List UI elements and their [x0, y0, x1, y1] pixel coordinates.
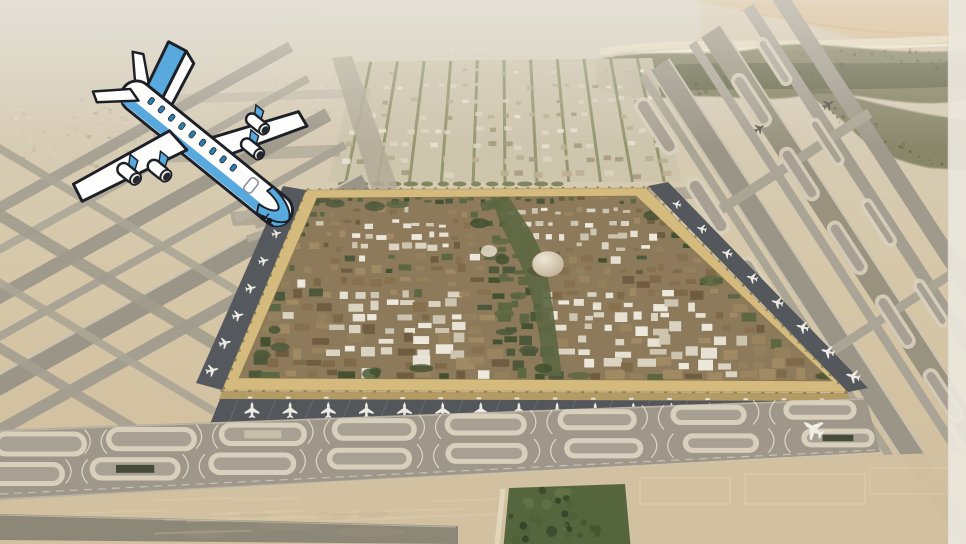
building: [371, 265, 381, 273]
building: [456, 371, 465, 380]
crenellation: [710, 252, 712, 255]
crenellation: [492, 187, 494, 188]
building: [659, 335, 670, 345]
district-building: [615, 157, 623, 161]
building: [336, 247, 341, 252]
building: [648, 338, 661, 346]
building: [345, 346, 355, 352]
building: [664, 299, 678, 306]
building: [442, 254, 453, 260]
jet-bridge: [782, 398, 787, 400]
jet-bridge: [438, 397, 443, 399]
island-core: [332, 453, 406, 465]
veg-dot: [940, 163, 943, 166]
spine-tree: [491, 238, 510, 244]
crenellation: [581, 391, 584, 393]
district-building: [401, 158, 408, 162]
building: [521, 323, 533, 329]
building: [341, 269, 353, 273]
crenellation: [706, 392, 709, 394]
crenellation: [276, 390, 279, 392]
crenellation: [415, 391, 418, 393]
building: [356, 220, 361, 225]
district-building: [461, 156, 470, 160]
jet-bridge: [286, 397, 291, 399]
building: [416, 266, 425, 271]
building: [431, 266, 443, 270]
perimeter-tree: [409, 364, 433, 372]
building: [404, 328, 415, 333]
perimeter-tree: [365, 202, 385, 212]
building: [673, 270, 681, 274]
tree: [529, 516, 535, 522]
island-core: [563, 414, 631, 425]
building: [698, 338, 711, 343]
crenellation: [636, 391, 639, 393]
building: [286, 371, 297, 377]
building: [740, 371, 757, 379]
building: [786, 358, 804, 366]
building: [331, 222, 340, 225]
building: [650, 275, 661, 282]
crenellation: [655, 195, 657, 198]
building: [661, 313, 670, 318]
building: [331, 258, 340, 264]
jet-bridge: [477, 397, 482, 399]
building: [487, 349, 503, 359]
building: [333, 314, 343, 322]
building: [558, 349, 575, 355]
crenellation: [262, 390, 265, 392]
building: [564, 280, 575, 287]
building: [574, 299, 584, 306]
building: [587, 292, 596, 297]
building: [657, 232, 665, 238]
tree: [524, 498, 534, 508]
building: [581, 255, 593, 261]
building: [578, 336, 586, 343]
building: [381, 347, 392, 354]
building: [605, 370, 625, 381]
jet-bridge: [362, 397, 367, 399]
building: [448, 282, 457, 286]
tree: [542, 499, 552, 509]
building: [427, 245, 437, 251]
crenellation: [423, 188, 425, 189]
district-building: [663, 171, 672, 176]
building: [630, 231, 637, 237]
building: [289, 265, 295, 271]
crenellation: [527, 187, 529, 188]
crenellation: [844, 392, 847, 394]
building: [559, 234, 564, 241]
crenellation: [498, 391, 501, 393]
building: [686, 346, 698, 355]
building: [701, 348, 717, 359]
tree: [519, 522, 527, 530]
building: [519, 336, 532, 345]
building: [429, 232, 434, 238]
district-building: [576, 170, 585, 176]
building: [324, 243, 329, 248]
building: [620, 270, 626, 274]
building: [480, 315, 495, 321]
jet-bridge: [705, 398, 710, 400]
crenellation: [663, 203, 665, 206]
building: [398, 349, 416, 356]
building: [415, 243, 426, 249]
building: [649, 234, 657, 241]
building: [504, 336, 517, 342]
building: [293, 349, 301, 360]
perimeter-tree: [700, 275, 724, 286]
building: [620, 324, 632, 331]
island-core: [676, 410, 741, 420]
smudge: [257, 521, 320, 530]
crenellation: [678, 392, 681, 394]
building: [736, 336, 747, 346]
crenellation: [345, 391, 348, 393]
building: [541, 208, 548, 211]
island-core: [337, 423, 411, 436]
building: [309, 242, 319, 249]
building: [371, 292, 379, 298]
building: [638, 359, 656, 367]
building: [585, 324, 592, 330]
tree: [509, 514, 514, 519]
building: [370, 279, 382, 286]
building: [525, 199, 531, 202]
crenellation: [342, 188, 344, 189]
jet-bridge: [515, 397, 520, 399]
building: [796, 368, 805, 379]
block: [8, 165, 10, 168]
building: [609, 303, 621, 311]
crenellation: [817, 392, 820, 394]
building: [576, 267, 585, 274]
tree-row: [486, 182, 498, 187]
crenellation: [365, 188, 367, 189]
building: [329, 325, 344, 330]
district-building: [514, 171, 523, 176]
building: [518, 368, 527, 378]
building: [451, 236, 458, 240]
building: [580, 234, 588, 241]
building: [663, 370, 683, 379]
building: [618, 233, 627, 239]
building: [648, 290, 655, 296]
building: [343, 220, 351, 223]
tree-row: [403, 182, 418, 187]
building: [454, 242, 460, 249]
building: [261, 337, 271, 346]
crenellation: [720, 392, 723, 394]
building: [293, 289, 302, 298]
district-building: [645, 156, 653, 161]
building: [669, 321, 681, 331]
block: [118, 150, 122, 153]
building: [605, 268, 611, 275]
building: [558, 300, 569, 304]
crenellation: [553, 391, 556, 393]
island-insert: [823, 435, 854, 441]
building: [389, 244, 399, 251]
building: [366, 234, 373, 239]
building: [329, 213, 334, 218]
building: [413, 336, 429, 344]
building: [679, 363, 689, 369]
building: [745, 328, 756, 333]
building: [478, 305, 493, 310]
district-building: [647, 174, 656, 179]
spine-tree: [510, 292, 527, 300]
central-dome: [532, 251, 564, 277]
building: [435, 200, 443, 204]
building: [611, 256, 621, 264]
crenellation: [692, 392, 695, 394]
crenellation: [353, 188, 355, 189]
building: [609, 221, 617, 225]
crenellation: [702, 244, 704, 247]
tree-row: [471, 182, 481, 187]
crenellation: [831, 392, 834, 394]
building: [387, 299, 399, 305]
building: [671, 352, 682, 360]
building: [591, 373, 600, 380]
crenellation: [307, 188, 309, 189]
building: [431, 256, 439, 263]
building: [685, 374, 702, 379]
building: [594, 312, 605, 317]
district-building: [342, 159, 351, 164]
building: [352, 242, 357, 248]
building: [345, 256, 355, 262]
crenellation: [650, 392, 653, 394]
building: [503, 267, 516, 274]
building: [456, 257, 463, 264]
building: [417, 277, 430, 281]
building: [635, 326, 647, 336]
building: [386, 269, 393, 273]
building: [352, 233, 360, 238]
spine-tree: [494, 309, 513, 319]
veg-dot: [929, 159, 931, 161]
building: [307, 360, 321, 366]
block: [7, 160, 10, 162]
crenellation: [526, 391, 529, 393]
building: [348, 333, 365, 342]
building: [591, 229, 597, 236]
crenellation: [539, 187, 541, 188]
building: [445, 270, 455, 274]
building: [439, 225, 446, 228]
spine-tree: [498, 274, 509, 282]
island-core: [570, 443, 638, 453]
building: [379, 339, 394, 344]
jet-bridge: [591, 398, 596, 400]
building: [615, 312, 628, 322]
crenellation: [775, 392, 778, 394]
tree: [565, 532, 572, 539]
building: [339, 230, 345, 237]
district-building: [516, 155, 524, 160]
scene-canvas: [0, 0, 966, 544]
building: [279, 324, 290, 333]
building: [465, 313, 477, 320]
building: [317, 303, 332, 311]
jet-bridge: [553, 398, 558, 400]
crenellation: [234, 390, 237, 392]
building: [598, 281, 607, 289]
building: [331, 265, 339, 271]
building: [297, 280, 305, 288]
tree: [581, 519, 588, 526]
perimeter-tree: [567, 372, 590, 379]
building: [598, 258, 607, 262]
district-building: [562, 171, 571, 177]
tree-row: [453, 182, 467, 187]
island-core: [451, 448, 522, 459]
building: [670, 281, 680, 285]
crenellation: [470, 391, 473, 393]
building: [698, 360, 713, 371]
building: [633, 248, 639, 251]
building: [537, 198, 545, 203]
building: [566, 291, 579, 295]
building: [385, 277, 396, 283]
building: [772, 359, 785, 369]
building: [403, 290, 409, 297]
building: [535, 221, 543, 226]
building: [445, 199, 453, 204]
crenellation: [643, 186, 645, 187]
perimeter-tree: [386, 201, 409, 209]
crenellation: [664, 392, 667, 394]
building: [448, 209, 456, 214]
airport-rendering: [0, 0, 966, 544]
building: [327, 232, 332, 235]
crenellation: [515, 187, 517, 188]
building: [566, 248, 572, 252]
building: [623, 210, 630, 213]
crenellation: [481, 187, 483, 188]
building: [615, 352, 631, 358]
building: [293, 360, 307, 365]
crenellation: [539, 391, 542, 393]
crenellation: [318, 390, 321, 392]
building: [451, 350, 465, 358]
tree: [546, 526, 557, 537]
building: [711, 289, 719, 293]
building: [615, 339, 624, 345]
building: [322, 361, 336, 368]
island-insert: [116, 465, 154, 473]
building: [309, 288, 323, 296]
building: [662, 290, 674, 296]
building: [569, 313, 577, 321]
building: [371, 301, 379, 311]
building: [308, 371, 317, 377]
crenellation: [227, 377, 229, 380]
building: [412, 234, 422, 240]
building: [647, 267, 655, 272]
building: [733, 304, 747, 312]
building: [742, 313, 757, 322]
tree: [511, 535, 520, 544]
block: [94, 164, 98, 168]
perimeter-tree: [269, 326, 281, 334]
perimeter-tree: [486, 200, 501, 208]
building: [548, 222, 552, 226]
veg-dot: [931, 163, 933, 165]
district-building: [529, 157, 538, 162]
building: [468, 242, 474, 247]
building: [443, 244, 449, 248]
crenellation: [585, 187, 587, 188]
building: [429, 301, 441, 307]
building: [386, 234, 394, 240]
building: [478, 290, 491, 295]
building: [367, 314, 376, 320]
crenellation: [373, 391, 376, 393]
building: [656, 357, 671, 366]
building: [608, 234, 618, 238]
crenellation: [469, 187, 471, 188]
building: [355, 268, 365, 275]
building: [340, 292, 348, 299]
building: [684, 267, 696, 272]
crenellation: [434, 188, 436, 189]
crenellation: [248, 390, 251, 392]
building: [620, 201, 624, 204]
crenellation: [290, 390, 293, 392]
island-core: [0, 437, 82, 452]
building: [418, 323, 431, 328]
district-building: [445, 173, 454, 178]
district-building: [561, 156, 570, 161]
crenellation: [446, 188, 448, 189]
building: [376, 235, 387, 240]
building: [477, 265, 484, 271]
building: [585, 223, 593, 228]
building: [458, 264, 466, 272]
tree-row: [534, 182, 548, 187]
building: [361, 347, 375, 357]
tree-row: [517, 182, 532, 187]
island-core: [688, 438, 753, 447]
building: [723, 325, 731, 331]
perimeter-tree: [253, 351, 271, 360]
building: [470, 254, 480, 261]
district-building: [387, 156, 395, 161]
crenellation: [318, 188, 320, 189]
building: [605, 325, 612, 331]
crenellation: [789, 392, 792, 394]
building: [690, 291, 703, 300]
building: [688, 303, 695, 312]
building: [267, 359, 278, 368]
tree: [554, 490, 561, 497]
tree: [595, 531, 601, 537]
block: [52, 153, 56, 157]
crenellation: [376, 188, 378, 189]
spine-tree: [534, 364, 552, 373]
building: [435, 328, 449, 333]
building: [498, 247, 506, 252]
crenellation: [504, 187, 506, 188]
building: [604, 358, 622, 367]
building: [341, 277, 347, 283]
